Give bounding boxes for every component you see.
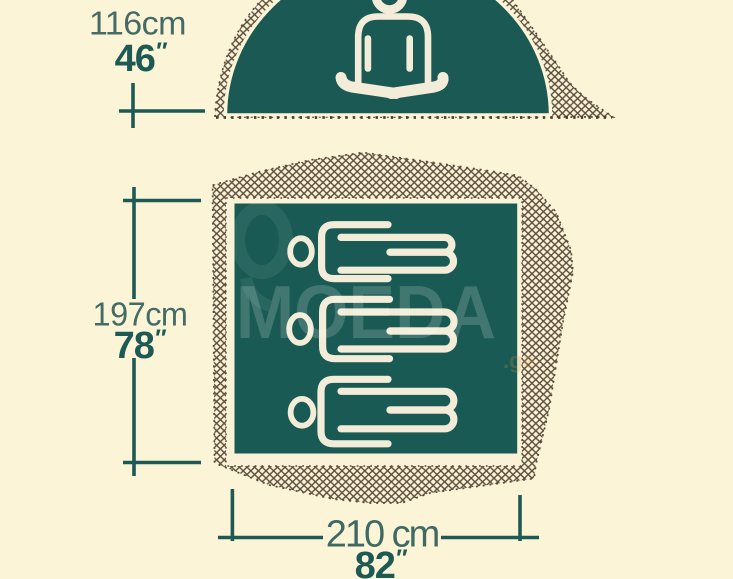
svg-text:.ge: .ge bbox=[503, 348, 535, 373]
svg-text:MOEDA: MOEDA bbox=[236, 270, 496, 354]
svg-text:116cm: 116cm bbox=[89, 5, 186, 42]
